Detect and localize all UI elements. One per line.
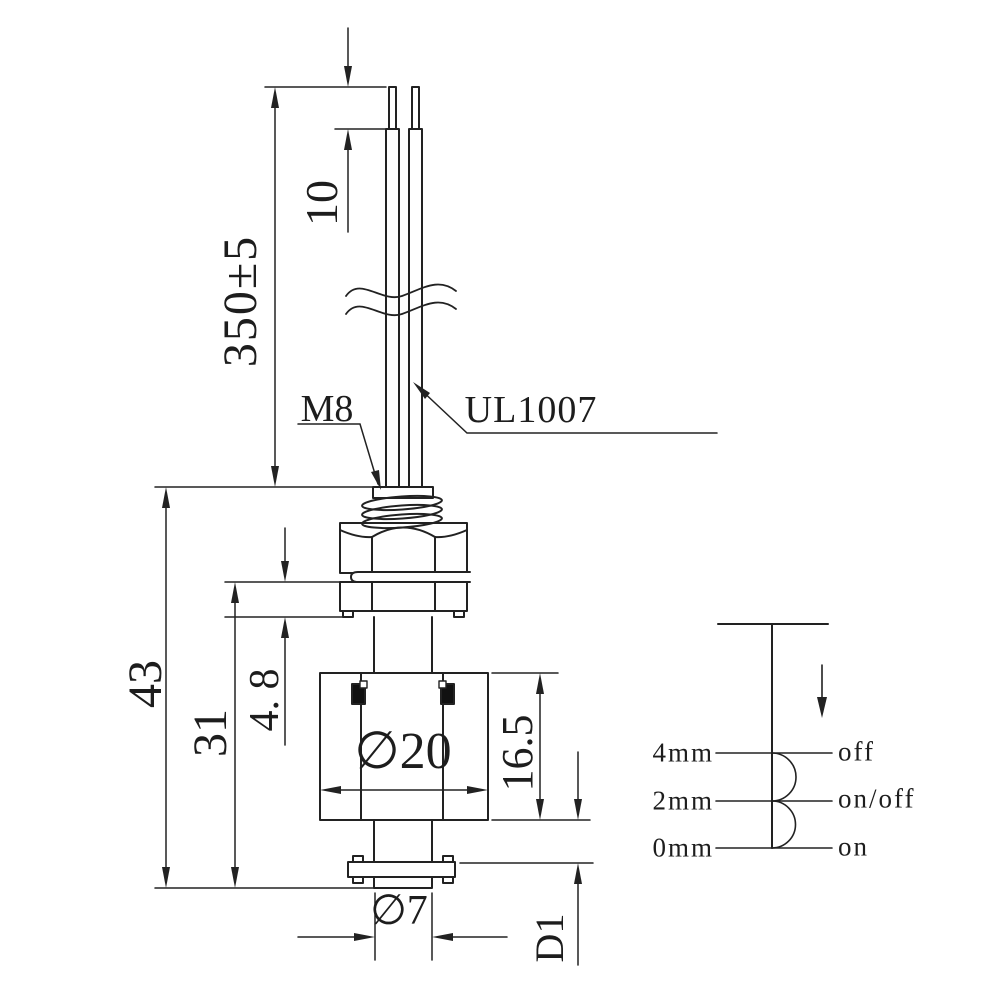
dim-cable-length-label: 350±5 [217, 235, 265, 367]
chart-level-4mm-label: 4mm [652, 740, 714, 767]
dim-stem-diameter-label: ∅7 [370, 890, 428, 932]
dim-float-travel-label: D1 [530, 914, 570, 963]
wire-type-label: UL1007 [465, 391, 598, 429]
dim-float-height-label: 16.5 [496, 715, 540, 792]
dim-collar-height-label: 4. 8 [244, 669, 286, 732]
dim-overall-height-label: 43 [122, 660, 170, 708]
chart-level-0mm-label: 0mm [652, 835, 714, 862]
chart-state-onoff-label: on/off [838, 786, 916, 813]
switch-state-chart-lines [716, 624, 832, 848]
chart-state-off-label: off [838, 739, 875, 766]
dim-float-diameter-label: ∅20 [354, 726, 451, 778]
drawing-page: 10 350±5 M8 UL1007 43 31 4. 8 ∅20 16.5 ∅… [0, 0, 1000, 1000]
dim-strip-length-label: 10 [299, 180, 345, 226]
chart-level-2mm-label: 2mm [652, 788, 714, 815]
dim-body-height-label: 31 [187, 709, 235, 757]
chart-state-on-label: on [838, 834, 869, 861]
arrowheads [162, 66, 827, 941]
thread-size-label: M8 [301, 390, 354, 428]
